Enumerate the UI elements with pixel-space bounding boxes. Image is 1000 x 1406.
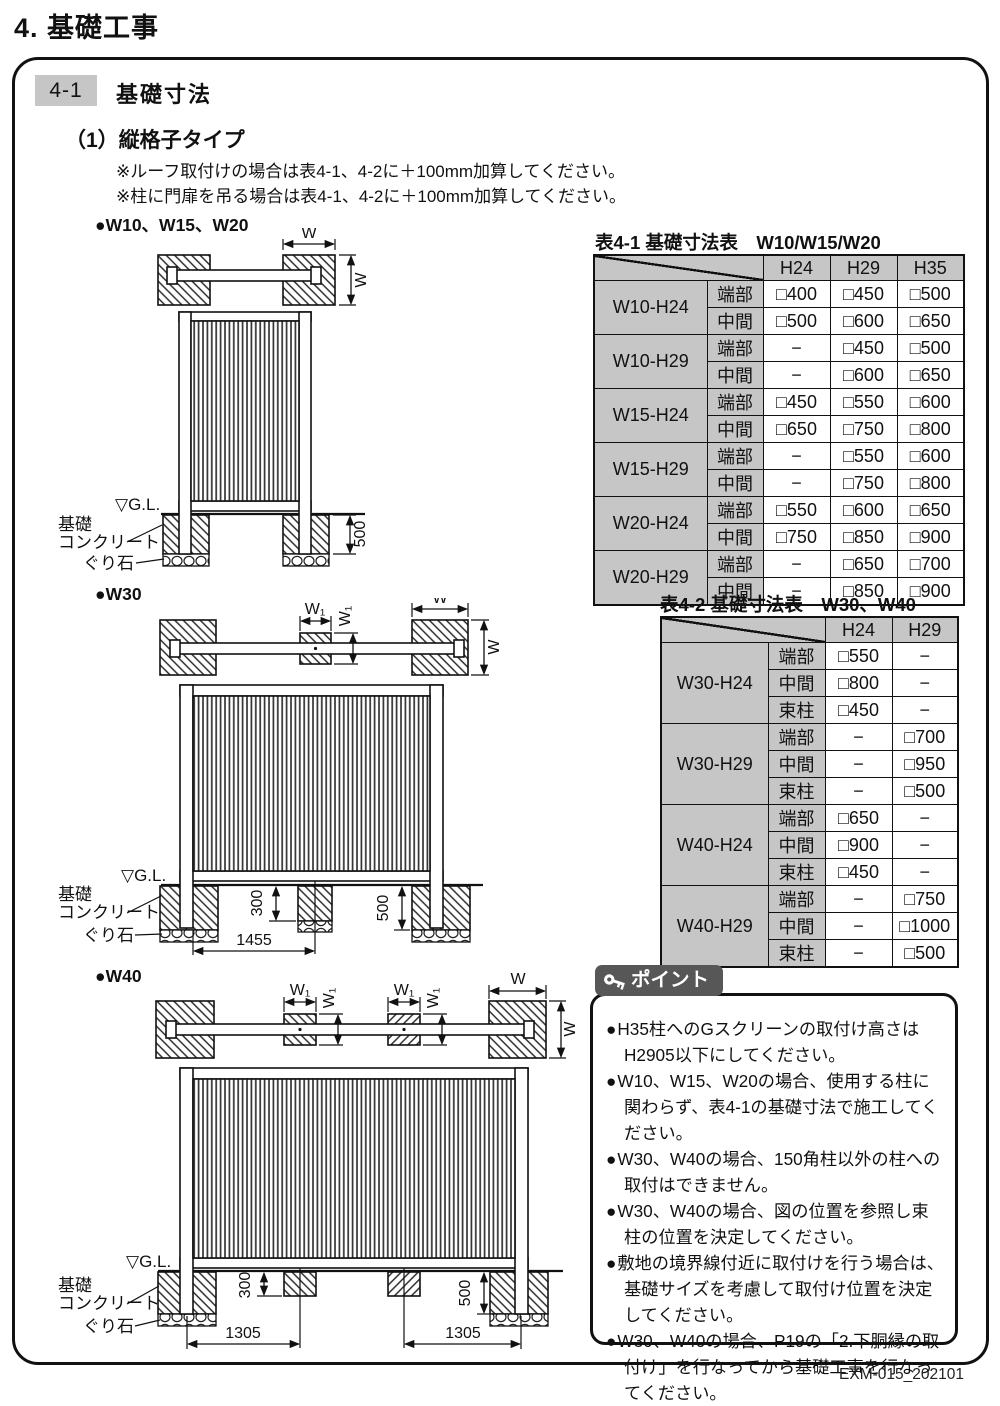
elevation-view — [158, 1068, 563, 1348]
subsection-title: （1）縦格子タイプ — [65, 124, 245, 154]
post-left — [179, 312, 191, 554]
table-row: W20-H29端部−□650□700 — [594, 551, 964, 578]
dim-span-1: 1305 — [225, 1325, 261, 1342]
foundation-label: 基礎 — [58, 1276, 92, 1295]
dim-w1: W₁ — [290, 982, 311, 999]
dimension-value: □900 — [897, 524, 964, 551]
gravel-right — [412, 930, 470, 942]
dimension-value: □500 — [897, 335, 964, 362]
content-frame: 4-1 基礎寸法 （1）縦格子タイプ ※ルーフ取付けの場合は表4-1、4-2に＋… — [12, 57, 989, 1365]
dim-w-side: W — [353, 272, 370, 288]
key-icon — [602, 969, 626, 993]
dimension-value: − — [763, 470, 830, 497]
dimension-value: □550 — [830, 389, 897, 416]
dimension-value: □700 — [897, 551, 964, 578]
row-group-label: W40-H29 — [661, 886, 768, 968]
table-row: W20-H24端部□550□600□650 — [594, 497, 964, 524]
point-item: ●W10、W15、W20の場合、使用する柱に関わらず、表4-1の基礎寸法で施工し… — [606, 1068, 945, 1146]
elevation-dimensions: 500 — [333, 515, 369, 554]
dim-span: 1455 — [236, 932, 272, 949]
diagram-w10-w15-w20: W W 500 — [53, 228, 383, 573]
post-right — [515, 1068, 528, 1314]
diagram-w40: W₁ W₁ W₁ W₁ W W — [53, 966, 593, 1368]
position-label: 束柱 — [768, 697, 825, 724]
post-right — [430, 685, 443, 928]
table-row: W10-H29端部−□450□500 — [594, 335, 964, 362]
dimension-value: − — [825, 724, 892, 751]
dimension-value: − — [763, 362, 830, 389]
table-header-row: H24H29H35 — [594, 255, 964, 281]
bullet-icon: ● — [606, 1331, 617, 1351]
position-label: 端部 — [707, 389, 763, 416]
position-label: 中間 — [707, 524, 763, 551]
position-label: 中間 — [707, 416, 763, 443]
dim-w-side: W — [562, 1021, 579, 1037]
dimension-value: □600 — [830, 362, 897, 389]
dimension-value: □400 — [763, 281, 830, 308]
dimension-value: − — [825, 886, 892, 913]
gravel-left — [163, 554, 209, 566]
position-label: 端部 — [707, 281, 763, 308]
plan-view — [156, 1001, 546, 1058]
position-label: 端部 — [707, 551, 763, 578]
bottom-rail — [180, 1258, 528, 1268]
row-group-label: W10-H24 — [594, 281, 707, 335]
column-header: H24 — [825, 617, 892, 643]
dimension-value: □450 — [830, 281, 897, 308]
dimension-value: □650 — [897, 497, 964, 524]
table-corner-cell — [661, 617, 825, 643]
dimension-value: □500 — [763, 308, 830, 335]
row-group-label: W15-H24 — [594, 389, 707, 443]
dim-span-2: 1305 — [445, 1325, 481, 1342]
gravel-right — [283, 554, 329, 566]
annotation-labels: ▽G.L. 基礎 コンクリート ぐり石 — [58, 1252, 171, 1336]
row-group-label: W30-H29 — [661, 724, 768, 805]
table-row: W40-H24端部□650− — [661, 805, 958, 832]
document-code: EXM-015_202101 — [839, 1366, 964, 1384]
dim-w-top: W — [432, 598, 448, 607]
position-label: 端部 — [768, 724, 825, 751]
table-row: W15-H29端部−□550□600 — [594, 443, 964, 470]
point-item: ●敷地の境界線付近に取付けを行う場合は、基礎サイズを考慮して取付け位置を決定して… — [606, 1250, 945, 1328]
dimension-value: □800 — [897, 416, 964, 443]
dimension-value: − — [892, 643, 958, 670]
dim-depth: 500 — [375, 895, 392, 922]
dim-w1-side: W₁ — [425, 988, 442, 1009]
position-label: 中間 — [768, 913, 825, 940]
top-rail — [180, 685, 443, 696]
dimension-value: □650 — [897, 308, 964, 335]
table-row: W15-H24端部□450□550□600 — [594, 389, 964, 416]
foundation-label: 基礎 — [58, 515, 92, 534]
table1-title: 表4-1 基礎寸法表 W10/W15/W20 — [595, 229, 881, 255]
dimension-value: □650 — [830, 551, 897, 578]
column-header: H35 — [897, 255, 964, 281]
row-group-label: W30-H24 — [661, 643, 768, 724]
gl-label: ▽G.L. — [115, 495, 160, 514]
foundation-label: コンクリート — [58, 1294, 160, 1313]
position-label: 束柱 — [768, 778, 825, 805]
elevation-dimensions: 300 500 1305 1305 — [187, 1272, 521, 1349]
top-rail — [180, 1068, 528, 1079]
gravel-label: ぐり石 — [83, 926, 134, 945]
plan-view — [158, 255, 335, 305]
dim-depth: 500 — [457, 1280, 474, 1307]
point-item: ●H35柱へのGスクリーンの取付け高さはH2905以下にしてください。 — [606, 1016, 945, 1068]
point-item: ●W30、W40の場合、150角柱以外の柱への取付はできません。 — [606, 1146, 945, 1198]
dim-depth-mid: 300 — [249, 890, 266, 917]
dim-depth-mid: 300 — [237, 1272, 254, 1299]
post-left — [180, 1068, 193, 1314]
dimension-value: □600 — [830, 497, 897, 524]
dimension-value: − — [763, 335, 830, 362]
dimension-value: □500 — [892, 778, 958, 805]
dimension-value: □750 — [830, 416, 897, 443]
table-header-row: H24H29 — [661, 617, 958, 643]
dimension-value: − — [763, 551, 830, 578]
dimension-value: − — [892, 670, 958, 697]
dimension-value: □950 — [892, 751, 958, 778]
foundation-label: コンクリート — [58, 903, 160, 922]
dimension-value: □750 — [830, 470, 897, 497]
dim-w1-side: W₁ — [337, 606, 354, 627]
position-label: 中間 — [768, 751, 825, 778]
dimension-value: □1000 — [892, 913, 958, 940]
table-row: W30-H29端部−□700 — [661, 724, 958, 751]
dimension-value: − — [825, 940, 892, 968]
position-label: 束柱 — [768, 859, 825, 886]
dim-w1: W₁ — [394, 982, 415, 999]
gravel-label: ぐり石 — [83, 554, 134, 573]
note-line: ※柱に門扉を吊る場合は表4-1、4-2に＋100mm加算してください。 — [116, 184, 626, 209]
dimension-value: □700 — [892, 724, 958, 751]
dimension-value: − — [825, 778, 892, 805]
table-row: W30-H24端部□550− — [661, 643, 958, 670]
dimension-value: − — [825, 913, 892, 940]
dimension-value: □500 — [892, 940, 958, 968]
dimension-value: □750 — [763, 524, 830, 551]
row-group-label: W40-H24 — [661, 805, 768, 886]
plan-view — [160, 620, 468, 675]
dimension-value: □550 — [763, 497, 830, 524]
points-badge: ポイント — [595, 965, 723, 996]
position-label: 中間 — [768, 832, 825, 859]
dimension-value: □650 — [763, 416, 830, 443]
dim-w-side: W — [486, 639, 503, 655]
lattice-panel — [193, 1079, 515, 1258]
bullet-icon: ● — [606, 1019, 617, 1039]
dimension-value: □450 — [763, 389, 830, 416]
dim-depth: 500 — [352, 521, 369, 548]
post-left — [180, 685, 193, 928]
gravel-left — [160, 930, 218, 942]
position-label: 中間 — [707, 470, 763, 497]
position-label: 端部 — [707, 497, 763, 524]
dim-w-top: W — [510, 971, 526, 988]
table2-title: 表4-2 基礎寸法表 W30、W40 — [660, 591, 916, 617]
dimension-value: − — [892, 805, 958, 832]
note-line: ※ルーフ取付けの場合は表4-1、4-2に＋100mm加算してください。 — [116, 159, 626, 184]
table-row: W40-H29端部−□750 — [661, 886, 958, 913]
bullet-icon: ● — [606, 1201, 617, 1221]
points-header-label: ポイント — [631, 969, 709, 991]
foundation-label: コンクリート — [58, 533, 160, 552]
dimension-value: □600 — [897, 389, 964, 416]
section-number-badge: 4-1 — [35, 75, 97, 106]
dimension-value: □450 — [830, 335, 897, 362]
row-group-label: W15-H29 — [594, 443, 707, 497]
position-label: 端部 — [768, 643, 825, 670]
position-label: 端部 — [768, 805, 825, 832]
bullet-icon: ● — [606, 1071, 617, 1091]
dimension-value: □450 — [825, 697, 892, 724]
diagram-w30: W₁ W₁ W W — [53, 598, 573, 963]
dimension-value: □750 — [892, 886, 958, 913]
position-label: 端部 — [768, 886, 825, 913]
annotation-labels: ▽G.L. 基礎 コンクリート ぐり石 — [58, 495, 164, 573]
gl-label: ▽G.L. — [121, 866, 166, 885]
column-header: H29 — [892, 617, 958, 643]
bottom-rail — [180, 871, 443, 881]
lattice-panel — [193, 696, 430, 871]
bullet-icon: ● — [606, 1253, 617, 1273]
notes: ※ルーフ取付けの場合は表4-1、4-2に＋100mm加算してください。 ※柱に門… — [116, 159, 626, 209]
row-group-label: W10-H29 — [594, 335, 707, 389]
table-row: W10-H24端部□400□450□500 — [594, 281, 964, 308]
point-item: ●W30、W40の場合、図の位置を参照し束柱の位置を決定してください。 — [606, 1198, 945, 1250]
dimension-value: − — [763, 443, 830, 470]
position-label: 中間 — [768, 670, 825, 697]
dimension-value: □550 — [825, 643, 892, 670]
page-title: 4. 基礎工事 — [14, 6, 159, 45]
elevation-view — [161, 312, 365, 566]
position-label: 中間 — [707, 308, 763, 335]
dimension-value: □500 — [897, 281, 964, 308]
lattice-panel — [191, 321, 299, 501]
dimension-value: − — [825, 751, 892, 778]
dimension-value: − — [892, 859, 958, 886]
foundation-dimension-table-1: H24H29H35W10-H24端部□400□450□500中間□500□600… — [593, 254, 965, 606]
position-label: 端部 — [707, 335, 763, 362]
dimension-value: □900 — [825, 832, 892, 859]
dimension-value: □850 — [830, 524, 897, 551]
position-label: 中間 — [707, 362, 763, 389]
top-rail — [179, 312, 311, 321]
annotation-labels: ▽G.L. 基礎 コンクリート ぐり石 — [58, 866, 166, 945]
bullet-icon: ● — [606, 1149, 617, 1169]
foundation-label: 基礎 — [58, 885, 92, 904]
page: 4. 基礎工事 4-1 基礎寸法 （1）縦格子タイプ ※ルーフ取付けの場合は表4… — [0, 0, 1000, 1390]
section-title: 基礎寸法 — [116, 77, 212, 109]
position-label: 端部 — [707, 443, 763, 470]
dimension-value: □650 — [825, 805, 892, 832]
column-header: H29 — [830, 255, 897, 281]
column-header: H24 — [763, 255, 830, 281]
points-list: ●H35柱へのGスクリーンの取付け高さはH2905以下にしてください。●W10、… — [606, 1016, 945, 1406]
dim-w-top: W — [301, 228, 317, 242]
dimension-value: □600 — [830, 308, 897, 335]
gravel-right — [490, 1314, 548, 1326]
table-corner-cell — [594, 255, 763, 281]
bottom-rail — [179, 501, 311, 511]
dimension-value: − — [892, 832, 958, 859]
dimension-value: − — [892, 697, 958, 724]
row-group-label: W20-H24 — [594, 497, 707, 551]
position-label: 束柱 — [768, 940, 825, 968]
dimension-value: □800 — [825, 670, 892, 697]
foundation-dimension-table-2: H24H29W30-H24端部□550−中間□800−束柱□450−W30-H2… — [660, 616, 959, 968]
elevation-view — [160, 685, 483, 954]
dimension-value: □800 — [897, 470, 964, 497]
dim-w1-side: W₁ — [321, 988, 338, 1009]
dimension-value: □600 — [897, 443, 964, 470]
dimension-value: □450 — [825, 859, 892, 886]
points-box: ●H35柱へのGスクリーンの取付け高さはH2905以下にしてください。●W10、… — [590, 993, 958, 1345]
post-right — [299, 312, 311, 554]
dim-w1: W₁ — [305, 601, 326, 618]
gl-label: ▽G.L. — [126, 1252, 171, 1271]
dimension-value: □650 — [897, 362, 964, 389]
gravel-label: ぐり石 — [83, 1317, 134, 1336]
dimension-value: □550 — [830, 443, 897, 470]
